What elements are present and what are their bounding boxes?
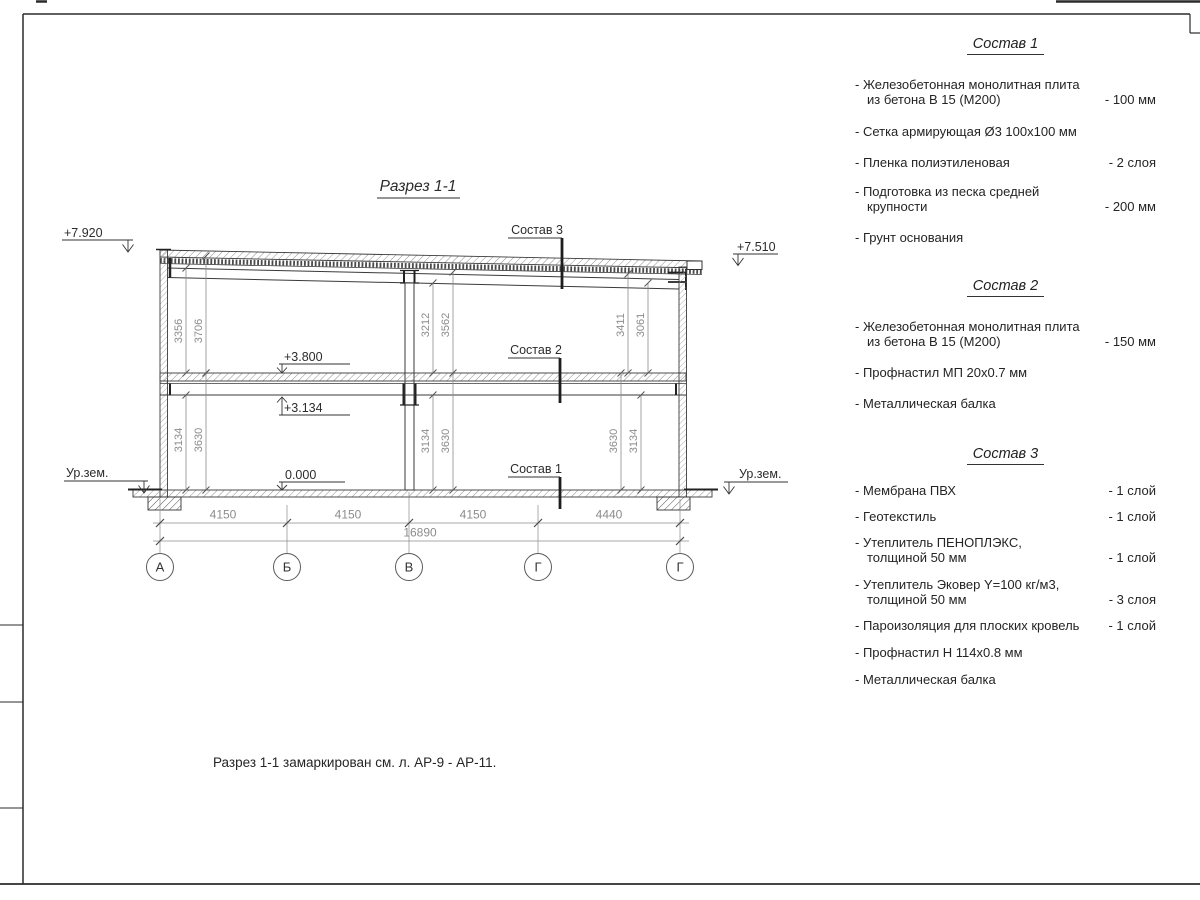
material-value: - 2 слоя bbox=[1109, 155, 1156, 170]
material-item: - Металлическая балка bbox=[855, 396, 1156, 411]
compositions-panel: Состав 1 - Железобетонная монолитная пли… bbox=[848, 0, 1168, 760]
vdim-ur-outer: 3061 bbox=[635, 313, 647, 337]
vdim-ll-outer: 3630 bbox=[193, 428, 205, 452]
section-title-label: Разрез 1-1 bbox=[380, 178, 457, 195]
vdim-um-outer: 3562 bbox=[440, 313, 452, 337]
material-item: - Металлическая балка bbox=[855, 672, 1156, 687]
material-item: - Мембрана ПВХ - 1 слой bbox=[855, 483, 1156, 498]
elevation-beam-label: +3.134 bbox=[284, 401, 323, 415]
vdim-ul-outer: 3706 bbox=[193, 319, 205, 343]
material-name: - Железобетонная монолитная плита из бет… bbox=[855, 319, 1080, 349]
material-name: - Грунт основания bbox=[855, 230, 963, 245]
hdim-total: 16890 bbox=[403, 526, 437, 540]
material-name: - Профнастил Н 114x0.8 мм bbox=[855, 645, 1023, 660]
material-name: - Геотекстиль bbox=[855, 509, 940, 524]
material-value: - 1 слой bbox=[1108, 483, 1156, 498]
material-item: - Утеплитель Эковер Y=100 кг/м3, толщино… bbox=[855, 577, 1156, 607]
axis-label-g2: Г bbox=[676, 560, 683, 575]
vdim-lr-inner: 3630 bbox=[608, 429, 620, 453]
right-foundation bbox=[657, 497, 690, 510]
material-name: - Мембрана ПВХ bbox=[855, 483, 956, 498]
material-item: - Подготовка из песка средней крупности … bbox=[855, 184, 1156, 214]
material-value: - 3 слоя bbox=[1109, 592, 1156, 607]
composition-3-title-text: Состав 3 bbox=[967, 446, 1044, 465]
right-wall bbox=[679, 267, 687, 497]
material-name: - Подготовка из песка средней крупности bbox=[855, 184, 1039, 214]
axis-label-b: Б bbox=[283, 560, 292, 575]
hdim-span-4: 4440 bbox=[596, 508, 623, 522]
ground-level-left-label: Ур.зем. bbox=[66, 466, 108, 480]
material-item: - Железобетонная монолитная плита из бет… bbox=[855, 77, 1156, 107]
drawing-sheet: Разрез 1-1 bbox=[0, 0, 1200, 900]
material-item: - Утеплитель ПЕНОПЛЭКС, толщиной 50 мм -… bbox=[855, 535, 1156, 565]
composition-3-section: Состав 3 - Мембрана ПВХ - 1 слой - Геоте… bbox=[848, 446, 1168, 687]
material-name: - Металлическая балка bbox=[855, 396, 996, 411]
material-name: - Пленка полиэтиленовая bbox=[855, 155, 1010, 170]
material-name: - Сетка армирующая Ø3 100x100 мм bbox=[855, 124, 1077, 139]
building-geometry bbox=[128, 250, 718, 511]
material-item: - Пароизоляция для плоских кровель - 1 с… bbox=[855, 618, 1156, 633]
material-value: - 1 слой bbox=[1108, 509, 1156, 524]
vdim-um-inner: 3212 bbox=[420, 313, 432, 337]
composition-1-section: Состав 1 - Железобетонная монолитная пли… bbox=[848, 36, 1168, 245]
reference-note: Разрез 1-1 замаркирован см. л. АР-9 - АР… bbox=[213, 755, 496, 770]
vdim-ur-inner: 3411 bbox=[615, 313, 627, 337]
ground-level-right-label: Ур.зем. bbox=[739, 467, 781, 481]
left-foundation bbox=[148, 497, 181, 510]
material-name: - Профнастил МП 20x0.7 мм bbox=[855, 365, 1027, 380]
elevation-roof-right-label: +7.510 bbox=[737, 240, 776, 254]
composition-1-title-text: Состав 1 bbox=[967, 36, 1044, 55]
material-value: - 100 мм bbox=[1105, 92, 1156, 107]
material-item: - Железобетонная монолитная плита из бет… bbox=[855, 319, 1156, 349]
composition-3-title: Состав 3 bbox=[855, 446, 1156, 465]
material-value: - 1 слой bbox=[1108, 618, 1156, 633]
material-value: - 150 мм bbox=[1105, 334, 1156, 349]
material-name: - Железобетонная монолитная плита из бет… bbox=[855, 77, 1080, 107]
composition-2-section: Состав 2 - Железобетонная монолитная пли… bbox=[848, 278, 1168, 411]
roof-edge-plate bbox=[687, 261, 702, 270]
marker-sostav2-label: Состав 2 bbox=[510, 343, 562, 357]
composition-2-title-text: Состав 2 bbox=[967, 278, 1044, 297]
marker-sostav1-label: Состав 1 bbox=[510, 462, 562, 476]
material-name: - Утеплитель ПЕНОПЛЭКС, толщиной 50 мм bbox=[855, 535, 1022, 565]
material-item: - Грунт основания bbox=[855, 230, 1156, 245]
axis-label-v: В bbox=[405, 560, 414, 575]
material-value: - 1 слой bbox=[1108, 550, 1156, 565]
material-item: - Геотекстиль - 1 слой bbox=[855, 509, 1156, 524]
material-name: - Металлическая балка bbox=[855, 672, 996, 687]
composition-2-title: Состав 2 bbox=[855, 278, 1156, 297]
hdim-span-3: 4150 bbox=[460, 508, 487, 522]
composition-1-title: Состав 1 bbox=[855, 36, 1156, 55]
horizontal-dimensions: 4150 4150 4150 4440 16890 А Б В Г Г bbox=[147, 492, 694, 581]
material-item: - Профнастил МП 20x0.7 мм bbox=[855, 365, 1156, 380]
elevation-level2-label: +3.800 bbox=[284, 350, 323, 364]
material-item: - Профнастил Н 114x0.8 мм bbox=[855, 645, 1156, 660]
material-item: - Сетка армирующая Ø3 100x100 мм bbox=[855, 124, 1156, 139]
marker-sostav3-label: Состав 3 bbox=[511, 223, 563, 237]
vdim-lm-outer: 3630 bbox=[440, 429, 452, 453]
material-item: - Пленка полиэтиленовая - 2 слоя bbox=[855, 155, 1156, 170]
axis-bubbles: А Б В Г Г bbox=[147, 554, 694, 581]
elevation-roof-left-label: +7.920 bbox=[64, 226, 103, 240]
hdim-span-1: 4150 bbox=[210, 508, 237, 522]
material-name: - Утеплитель Эковер Y=100 кг/м3, толщино… bbox=[855, 577, 1059, 607]
elevation-zero-label: 0.000 bbox=[285, 468, 316, 482]
hdim-span-2: 4150 bbox=[335, 508, 362, 522]
vdim-ul-inner: 3356 bbox=[173, 319, 185, 343]
vdim-lr-outer: 3134 bbox=[628, 429, 640, 453]
vdim-lm-inner: 3134 bbox=[420, 429, 432, 453]
axis-label-a: А bbox=[156, 560, 165, 575]
drawing-title: Разрез 1-1 bbox=[377, 178, 460, 198]
material-name: - Пароизоляция для плоских кровель bbox=[855, 618, 1079, 633]
floor-slab bbox=[160, 373, 686, 405]
vdim-ll-inner: 3134 bbox=[173, 428, 185, 452]
material-value: - 200 мм bbox=[1105, 199, 1156, 214]
axis-label-g1: Г bbox=[534, 560, 541, 575]
